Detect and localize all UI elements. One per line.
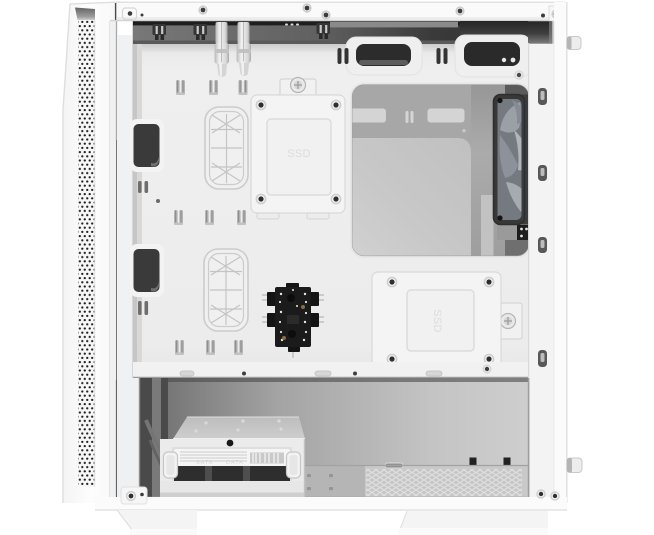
svg-text:DATA: DATA	[226, 460, 244, 466]
svg-text:SATA: SATA	[196, 460, 214, 466]
svg-text:SSD: SSD	[287, 148, 311, 160]
svg-text:SSD: SSD	[431, 309, 443, 333]
